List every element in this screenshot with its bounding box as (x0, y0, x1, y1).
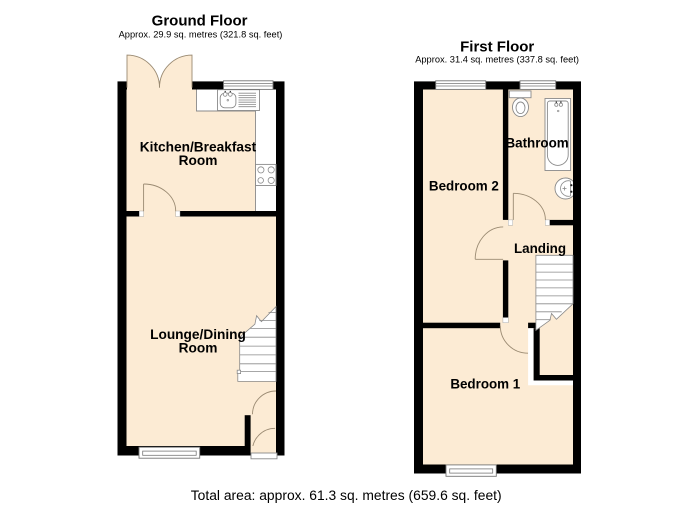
svg-text:Bathroom: Bathroom (505, 135, 568, 150)
svg-text:Bedroom 1: Bedroom 1 (450, 376, 520, 391)
svg-text:Room: Room (179, 340, 218, 355)
svg-text:Approx. 29.9 sq. metres (321.8: Approx. 29.9 sq. metres (321.8 sq. feet) (119, 29, 283, 39)
svg-text:Room: Room (179, 153, 218, 168)
svg-text:Approx. 31.4 sq. metres (337.8: Approx. 31.4 sq. metres (337.8 sq. feet) (415, 55, 579, 65)
svg-text:Landing: Landing (514, 241, 566, 256)
svg-text:First Floor: First Floor (460, 38, 534, 55)
svg-text:Ground Floor: Ground Floor (152, 12, 248, 29)
svg-text:Bedroom 2: Bedroom 2 (429, 178, 499, 193)
svg-text:Total area: approx. 61.3 sq. m: Total area: approx. 61.3 sq. metres (659… (191, 487, 502, 503)
